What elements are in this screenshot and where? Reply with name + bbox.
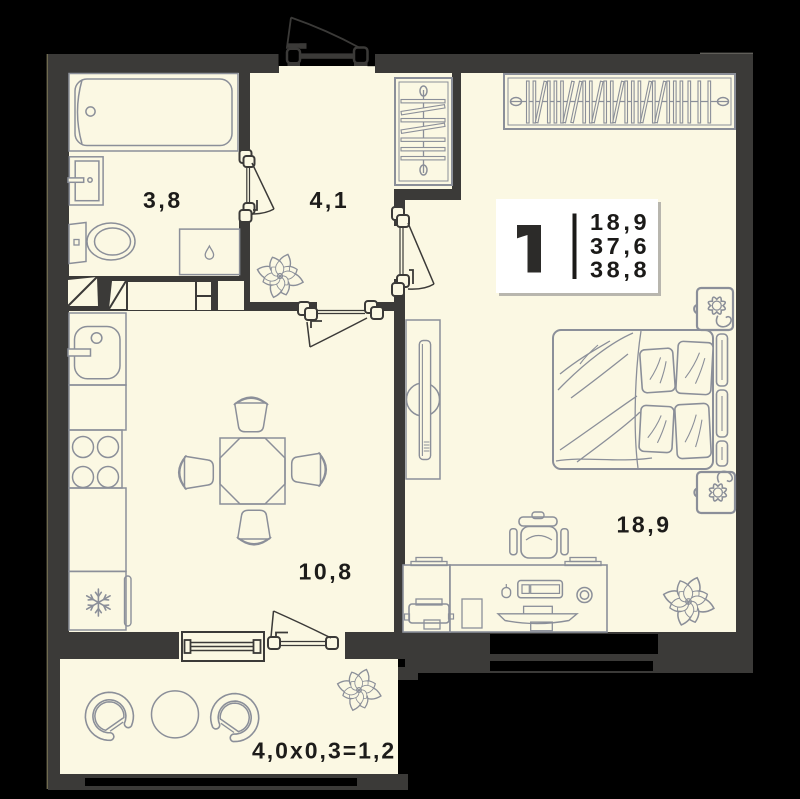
svg-text:18,9: 18,9 [617,512,672,538]
svg-text:4,0x0,3=1,2: 4,0x0,3=1,2 [252,738,396,764]
svg-text:3,8: 3,8 [143,187,183,213]
svg-text:37,6: 37,6 [590,233,650,259]
svg-text:38,8: 38,8 [590,257,650,283]
svg-text:18,9: 18,9 [590,209,650,235]
svg-text:10,8: 10,8 [299,558,354,584]
svg-text:4,1: 4,1 [310,187,350,213]
